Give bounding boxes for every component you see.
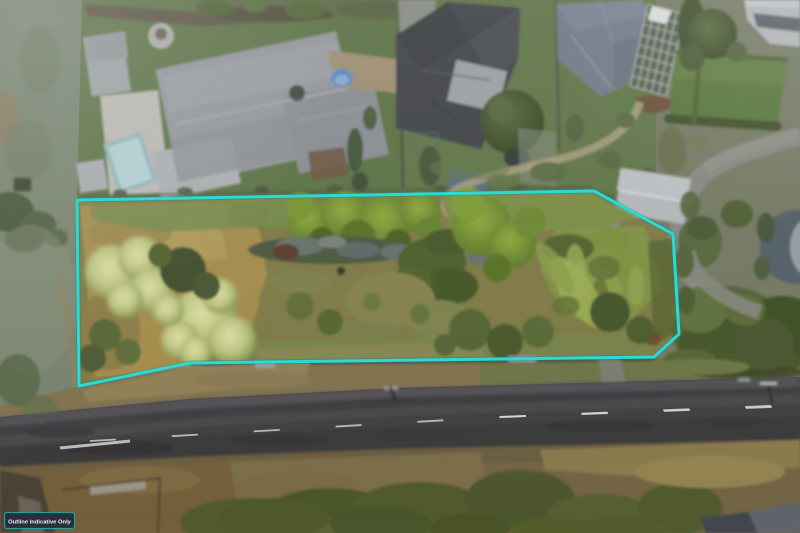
svg-text:Outline Indicative Only: Outline Indicative Only	[8, 519, 72, 525]
